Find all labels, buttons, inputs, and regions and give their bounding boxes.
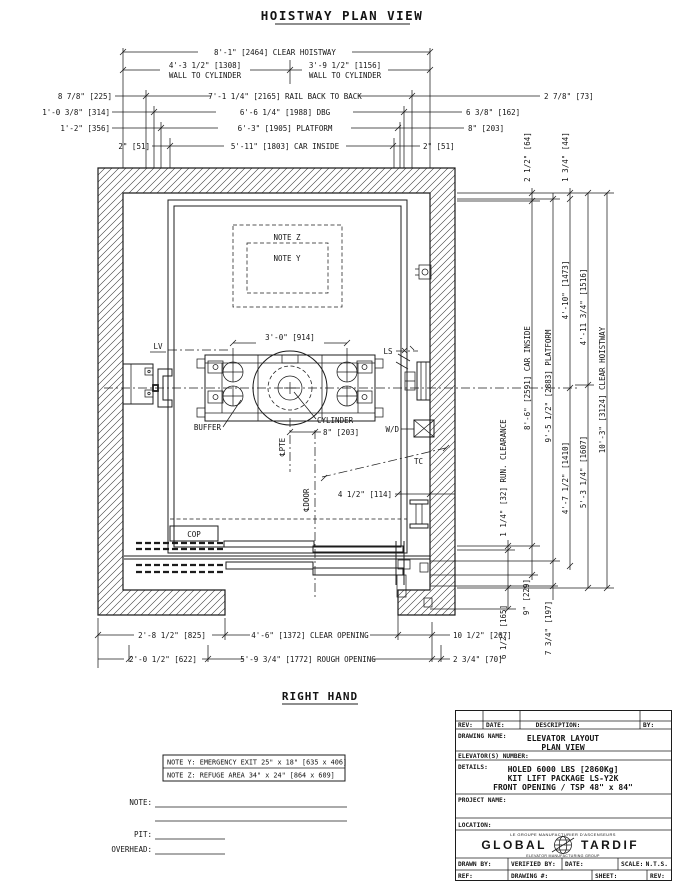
tb-scale-value: N.T.S. xyxy=(646,861,668,868)
dim-offset-car-top: 2 1/2" [64] xyxy=(523,132,532,182)
dim-platform-v: 9'-5 1/2" [2883] PLATFORM xyxy=(544,329,553,442)
dim-rail-right: 2 7/8" [73] xyxy=(544,92,594,101)
tb-drawn-by-label: DRAWN BY: xyxy=(458,861,492,868)
dim-bottom-left-a: 2'-8 1/2" [825] xyxy=(138,631,206,640)
dim-wall-to-cyl-left: 4'-3 1/2" [1308] xyxy=(169,61,241,70)
dim-rail-left: 8 7/8" [225] xyxy=(58,92,112,101)
dim-rough-opening: 5'-9 3/4" [1772] ROUGH OPENING xyxy=(240,655,376,664)
tb-details-2: KIT LIFT PACKAGE LS-Y2K xyxy=(508,774,619,783)
top-dimension-labels: 8'-1" [2464] CLEAR HOISTWAY 4'-3 1/2" [1… xyxy=(42,48,593,151)
logo-tardif-text: TARDIF xyxy=(581,838,639,852)
dim-platform-right: 8" [203] xyxy=(468,124,504,133)
company-logo: LE GROUPE MANUFACTURIER D'ASCENSEURS GLO… xyxy=(481,832,639,858)
dim-sill-c: 7 3/4" [197] xyxy=(544,601,553,655)
dim-wall-to-cyl-left-sub: WALL TO CYLINDER xyxy=(169,71,242,80)
dim-cyl-lower: 5'-3 1/4" [1607] xyxy=(579,436,588,508)
tb-details-label: DETAILS: xyxy=(458,764,488,771)
note-fields: NOTE: PIT: OVERHEAD: xyxy=(111,798,347,854)
dim-cyl-offset: 8" [203] xyxy=(323,428,359,437)
tb-by-label: BY: xyxy=(643,722,654,729)
door-strut-ibeam xyxy=(410,500,428,528)
dim-platform-left: 1'-2" [356] xyxy=(60,124,110,133)
dim-cyl-upper: 4'-11 3/4" [1516] xyxy=(579,269,588,346)
bottom-dimension-labels: 2'-8 1/2" [825] 4'-6" [1372] CLEAR OPENI… xyxy=(129,631,512,664)
tb-verified-by-label: VERIFIED BY: xyxy=(511,861,556,868)
dim-clear-opening: 4'-6" [1372] CLEAR OPENING xyxy=(251,631,369,640)
tb-details-3: FRONT OPENING / TSP 48" x 84" xyxy=(493,783,633,792)
dim-offset-platform-top: 1 3/4" [44] xyxy=(561,132,570,182)
dim-car-right: 2" [51] xyxy=(423,142,455,151)
note-z-text: NOTE Z: REFUGE AREA 34" x 24" [864 x 609… xyxy=(167,772,335,780)
tb-ref-label: REF: xyxy=(458,873,473,880)
dim-dbg-left: 1'-0 3/8" [314] xyxy=(42,108,110,117)
tb-rev-label: REV: xyxy=(458,722,473,729)
tb-drawing-no-label: DRAWING #: xyxy=(511,873,548,880)
dim-clear-hoistway-v: 10'-3" [3124] CLEAR HOISTWAY xyxy=(598,326,607,453)
tb-scale-label: SCALE: xyxy=(621,861,643,868)
tb-drawing-name-1: ELEVATOR LAYOUT xyxy=(527,734,599,743)
note-field-label: NOTE: xyxy=(129,798,152,807)
tc-label: TC xyxy=(414,457,423,466)
tb-date-label: DATE: xyxy=(486,722,505,729)
dim-bottom-left-b: 2'-0 1/2" [622] xyxy=(129,655,197,664)
left-rail-bracket xyxy=(123,364,172,407)
globe-icon xyxy=(552,837,574,854)
cop-panel: COP xyxy=(170,526,218,541)
dim-run-clearance: 1 1/4" [32] RUN. CLEARANCE xyxy=(499,419,508,537)
tb-sheet-label: SHEET: xyxy=(595,873,617,880)
overhead-field-label: OVERHEAD: xyxy=(111,845,152,854)
tb-date2-label: DATE: xyxy=(565,861,584,868)
dim-bottom-right-b: 2 3/4" [70] xyxy=(453,655,503,664)
note-y-ref: NOTE Y xyxy=(273,254,301,263)
dim-car-left: 2" [51] xyxy=(118,142,150,151)
dim-car: 5'-11" [1803] CAR INSIDE xyxy=(231,142,340,151)
dim-sill-b: 9" [229] xyxy=(522,579,531,615)
drawing-sheet: HOISTWAY PLAN VIEW 8'-1" [2464] CLEAR HO… xyxy=(0,0,678,881)
notes-table: NOTE Y: EMERGENCY EXIT 25" x 18" [635 x … xyxy=(163,755,347,781)
dim-wall-to-cyl-right-sub: WALL TO CYLINDER xyxy=(309,71,382,80)
note-z-ref: NOTE Z xyxy=(273,233,301,242)
dim-cyl-spacing: 3'-0" [914] xyxy=(265,333,315,342)
tb-description-label: DESCRIPTION: xyxy=(536,722,581,729)
right-dimension-lines xyxy=(430,188,614,612)
right-wall-fixture xyxy=(415,265,431,279)
cop-label: COP xyxy=(187,530,201,539)
dim-door-offset: 4 1/2" [114] xyxy=(338,490,392,499)
title-block: REV: DATE: DESCRIPTION: BY: DRAWING NAME… xyxy=(456,710,672,881)
logo-bottom-text: ELEVATOR MANUFACTURING GROUP xyxy=(526,854,600,858)
page-title: HOISTWAY PLAN VIEW xyxy=(261,8,423,23)
ls-label: LS xyxy=(383,347,393,356)
tb-details-1: HOLED 6000 LBS [2860Kg] xyxy=(508,765,619,774)
dim-wall-to-cyl-right: 3'-9 1/2" [1156] xyxy=(309,61,381,70)
dim-dbg-right: 6 3/8" [162] xyxy=(466,108,520,117)
wd-label: W/D xyxy=(385,425,399,434)
plan-annotation-lines xyxy=(150,340,455,497)
hand-label: RIGHT HAND xyxy=(282,690,358,703)
dim-rail-upper: 4'-10" [1473] xyxy=(561,261,570,320)
dim-platform: 6'-3" [1905] PLATFORM xyxy=(238,124,333,133)
pit-field-label: PIT: xyxy=(134,830,152,839)
note-y-text: NOTE Y: EMERGENCY EXIT 25" x 18" [635 x … xyxy=(167,759,347,767)
tb-elevators-number-label: ELEVATOR(S) NUMBER: xyxy=(458,753,529,760)
cl-door-label: ℄DOOR xyxy=(302,488,311,512)
dim-rail: 7'-1 1/4" [2165] RAIL BACK TO BACK xyxy=(208,92,362,101)
dim-rail-lower: 4'-7 1/2" [1410] xyxy=(561,442,570,514)
tb-drawing-name-label: DRAWING NAME: xyxy=(458,733,506,740)
logo-global-text: GLOBAL xyxy=(481,838,547,852)
cl-pte-label: ℄PTE xyxy=(278,437,287,457)
tb-rev2-label: REV: xyxy=(650,873,665,880)
tb-project-name-label: PROJECT NAME: xyxy=(458,797,506,804)
buffer-label: BUFFER xyxy=(194,423,222,432)
tb-drawing-name-2: PLAN VIEW xyxy=(541,743,585,752)
cylinder-label: CYLINDER xyxy=(317,416,354,425)
dim-car-inside-v: 8'-6" [2591] CAR INSIDE xyxy=(523,326,532,430)
dim-clear-hoistway: 8'-1" [2464] CLEAR HOISTWAY xyxy=(214,48,336,57)
lv-label: LV xyxy=(153,342,163,351)
tb-location-label: LOCATION: xyxy=(458,822,492,829)
dim-bottom-right-a: 10 1/2" [267] xyxy=(453,631,512,640)
dim-dbg: 6'-6 1/4" [1988] DBG xyxy=(240,108,331,117)
